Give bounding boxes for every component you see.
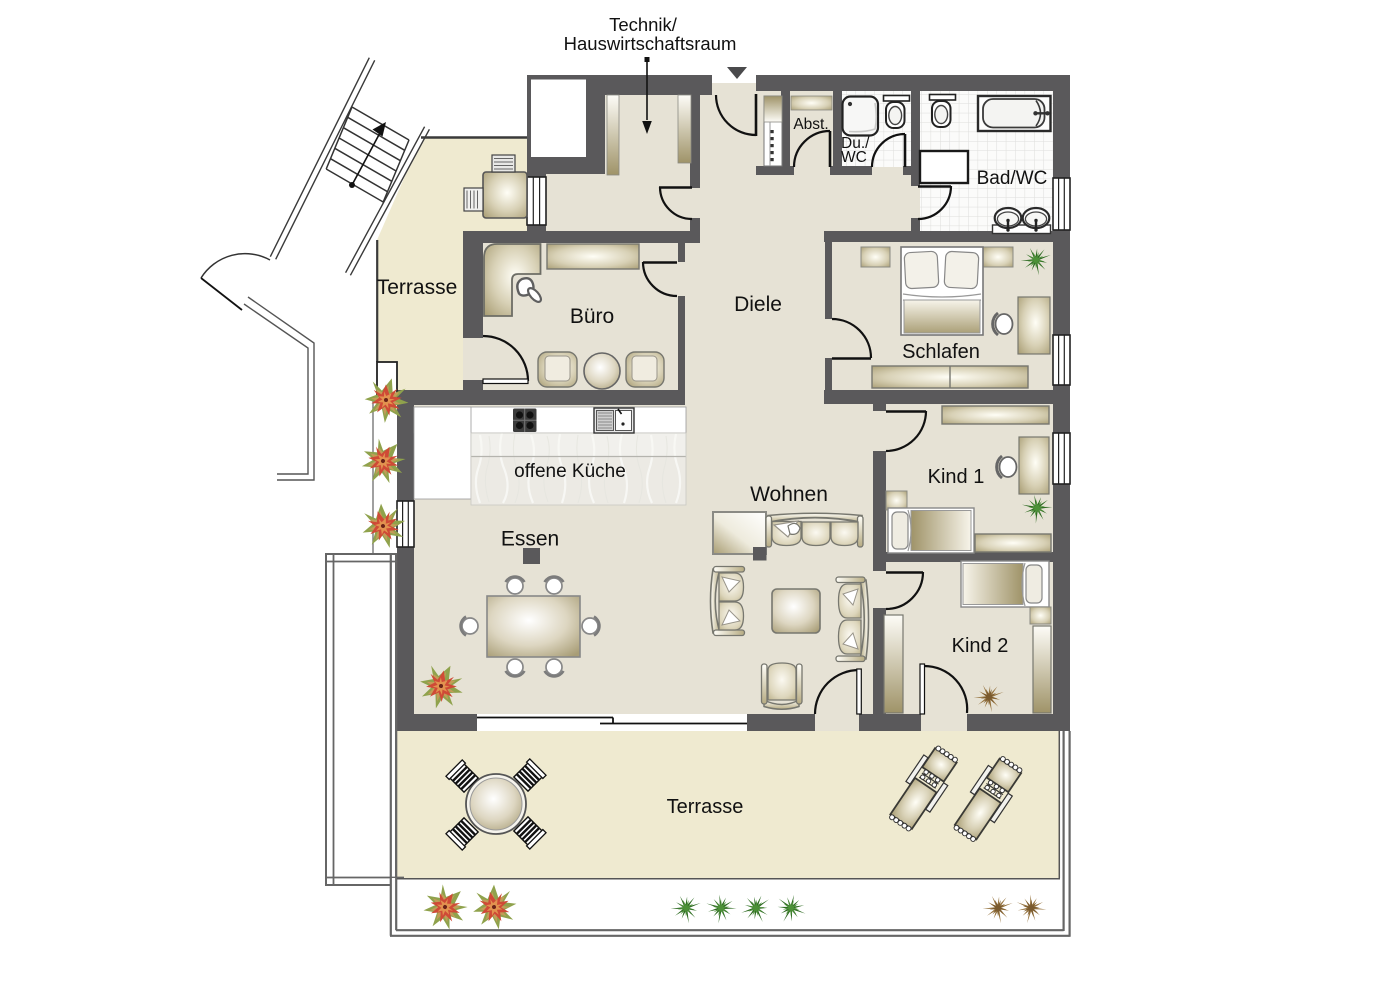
svg-text:Terrasse: Terrasse xyxy=(667,796,744,818)
svg-text:Technik/: Technik/ xyxy=(609,14,678,35)
svg-text:offene Küche: offene Küche xyxy=(514,461,626,482)
svg-text:Essen: Essen xyxy=(501,528,559,551)
svg-text:Bad/WC: Bad/WC xyxy=(977,168,1048,189)
svg-text:Schlafen: Schlafen xyxy=(902,341,980,363)
svg-text:Hauswirtschaftsraum: Hauswirtschaftsraum xyxy=(564,33,737,54)
svg-text:Abst.: Abst. xyxy=(793,116,828,133)
svg-text:WC: WC xyxy=(841,149,867,166)
svg-text:Kind 1: Kind 1 xyxy=(928,466,985,488)
svg-text:Wohnen: Wohnen xyxy=(750,483,828,506)
svg-text:Diele: Diele xyxy=(734,293,782,316)
svg-text:Terrasse: Terrasse xyxy=(377,276,458,299)
svg-text:Büro: Büro xyxy=(570,305,614,328)
svg-text:Kind 2: Kind 2 xyxy=(952,635,1009,657)
